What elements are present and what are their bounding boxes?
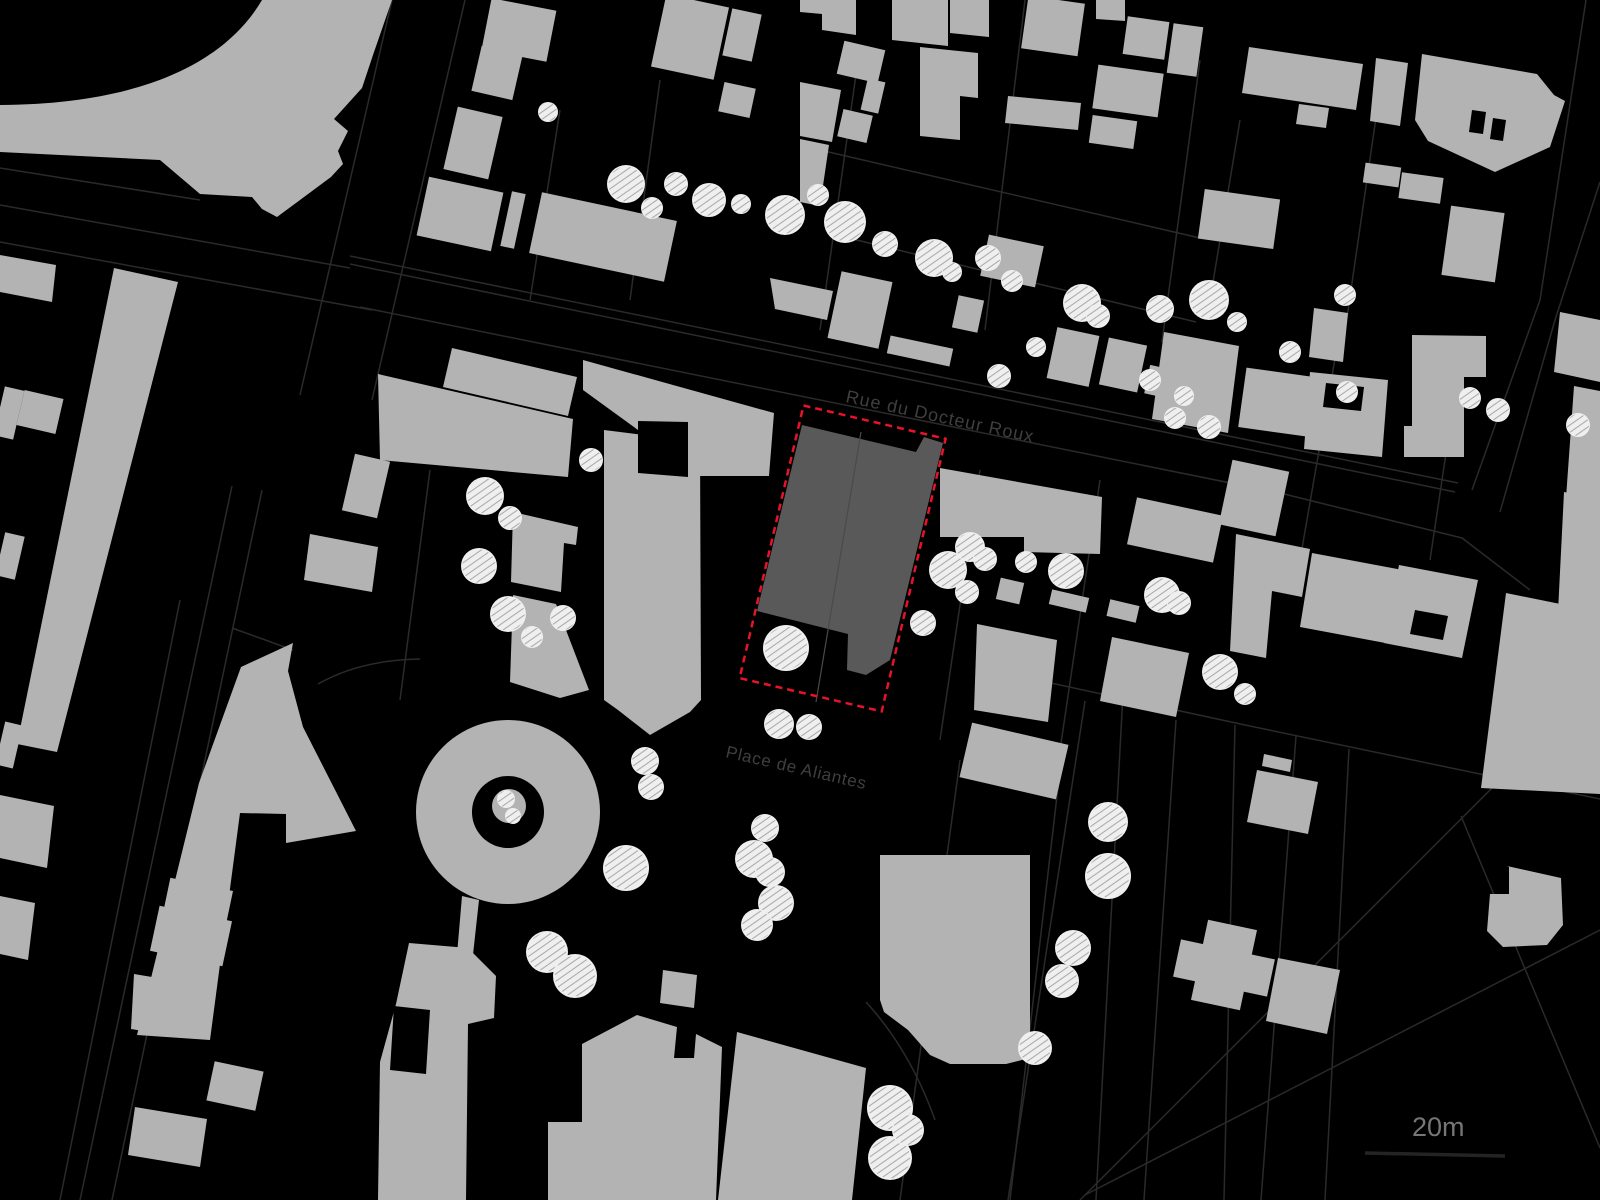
svg-text:20m: 20m (1412, 1112, 1465, 1142)
